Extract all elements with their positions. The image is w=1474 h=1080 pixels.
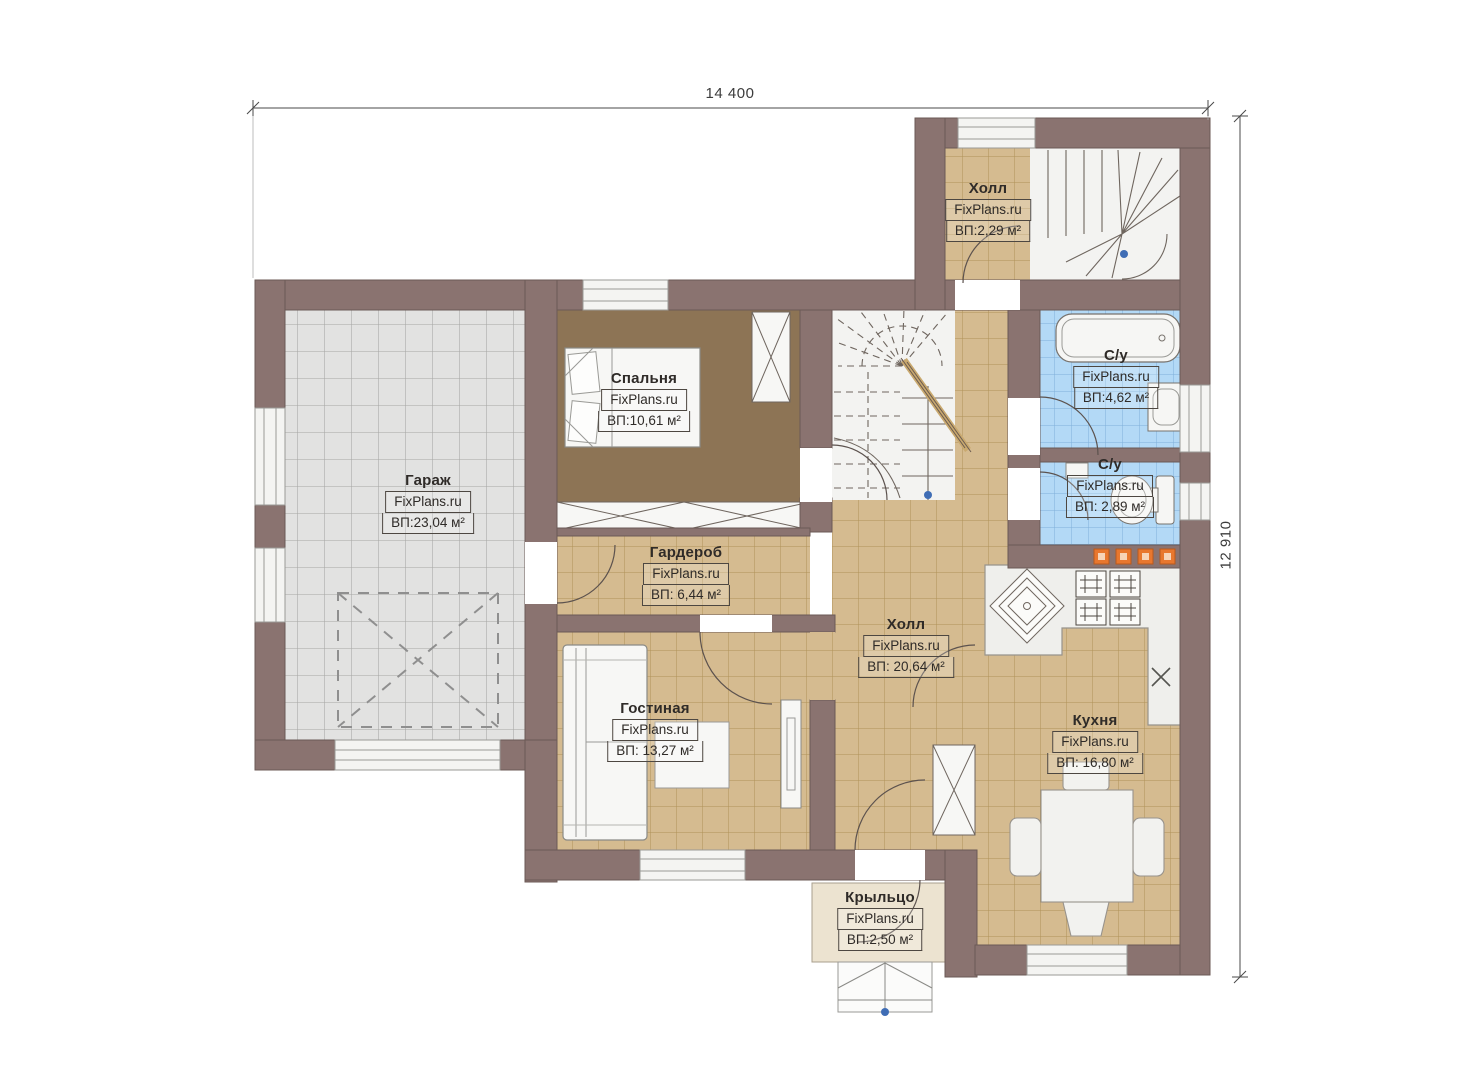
- room-area: ВП:10,61 м²: [598, 411, 690, 432]
- room-name: Гараж: [405, 472, 451, 489]
- porch-steps: [838, 962, 932, 1016]
- room-area: ВП:4,62 м²: [1074, 388, 1158, 409]
- room-watermark: FixPlans.ru: [1052, 731, 1138, 753]
- room-label-living-room: Гостиная FixPlans.ru ВП: 13,27 м²: [607, 700, 703, 762]
- room-watermark: FixPlans.ru: [1067, 475, 1153, 497]
- room-watermark: FixPlans.ru: [643, 563, 729, 585]
- room-name: Холл: [969, 180, 1007, 197]
- window: [1180, 385, 1210, 452]
- room-name: Гардероб: [650, 544, 723, 561]
- stair-marker-dot: [924, 491, 932, 499]
- window: [1027, 945, 1127, 975]
- room-label-hall-top: Холл FixPlans.ru ВП:2,29 м²: [945, 180, 1031, 242]
- room-label-garage: Гараж FixPlans.ru ВП:23,04 м²: [382, 472, 474, 534]
- room-area: ВП: 16,80 м²: [1047, 753, 1143, 774]
- room-label-bathroom-2: С/у FixPlans.ru ВП: 2,89 м²: [1066, 456, 1154, 518]
- closet-strip-icon: [557, 502, 810, 530]
- window: [1180, 483, 1210, 520]
- room-name: Крыльцо: [845, 889, 915, 906]
- room-area: ВП: 6,44 м²: [642, 585, 730, 606]
- window: [640, 850, 745, 880]
- room-name: С/у: [1098, 456, 1122, 473]
- tv-icon: [781, 700, 801, 808]
- room-name: Кухня: [1073, 712, 1118, 729]
- garage-door: [335, 740, 500, 770]
- room-label-bedroom: Спальня FixPlans.ru ВП:10,61 м²: [598, 370, 690, 432]
- room-watermark: FixPlans.ru: [1073, 366, 1159, 388]
- dimension-width-label: 14 400: [706, 85, 755, 102]
- step-marker-dot: [881, 1008, 889, 1016]
- room-name: Холл: [887, 616, 925, 633]
- stair-marker-dot: [1120, 250, 1128, 258]
- room-name: Спальня: [611, 370, 677, 387]
- room-watermark: FixPlans.ru: [945, 199, 1031, 221]
- room-label-kitchen: Кухня FixPlans.ru ВП: 16,80 м²: [1047, 712, 1143, 774]
- upper-stairs-floor: [1030, 148, 1180, 280]
- room-label-porch: Крыльцо FixPlans.ru ВП:2,50 м²: [837, 889, 923, 951]
- room-label-bathroom-1: С/у FixPlans.ru ВП:4,62 м²: [1073, 347, 1159, 409]
- room-label-hall-main: Холл FixPlans.ru ВП: 20,64 м²: [858, 616, 954, 678]
- room-name: С/у: [1104, 347, 1128, 364]
- window: [255, 408, 285, 505]
- dimension-height-label: 12 910: [1218, 521, 1235, 570]
- room-watermark: FixPlans.ru: [837, 908, 923, 930]
- room-area: ВП: 2,89 м²: [1066, 497, 1154, 518]
- room-area: ВП:2,50 м²: [838, 930, 922, 951]
- room-watermark: FixPlans.ru: [863, 635, 949, 657]
- window: [255, 548, 285, 622]
- room-area: ВП: 13,27 м²: [607, 741, 703, 762]
- window: [958, 118, 1035, 148]
- room-label-wardrobe: Гардероб FixPlans.ru ВП: 6,44 м²: [642, 544, 730, 606]
- room-name: Гостиная: [620, 700, 689, 717]
- room-watermark: FixPlans.ru: [612, 719, 698, 741]
- floor-plan-drawing: [0, 0, 1474, 1080]
- bedroom-wardrobe-icon: [752, 312, 790, 402]
- duct-shaft-icon: [933, 745, 975, 835]
- room-watermark: FixPlans.ru: [601, 389, 687, 411]
- window: [583, 280, 668, 310]
- main-stairs: [832, 308, 971, 500]
- room-area: ВП: 20,64 м²: [858, 657, 954, 678]
- room-watermark: FixPlans.ru: [385, 491, 471, 513]
- room-area: ВП:2,29 м²: [946, 221, 1030, 242]
- room-area: ВП:23,04 м²: [382, 513, 474, 534]
- floor-plan-page: 14 400 12 910 Холл FixPlans.ru ВП:2,29 м…: [0, 0, 1474, 1080]
